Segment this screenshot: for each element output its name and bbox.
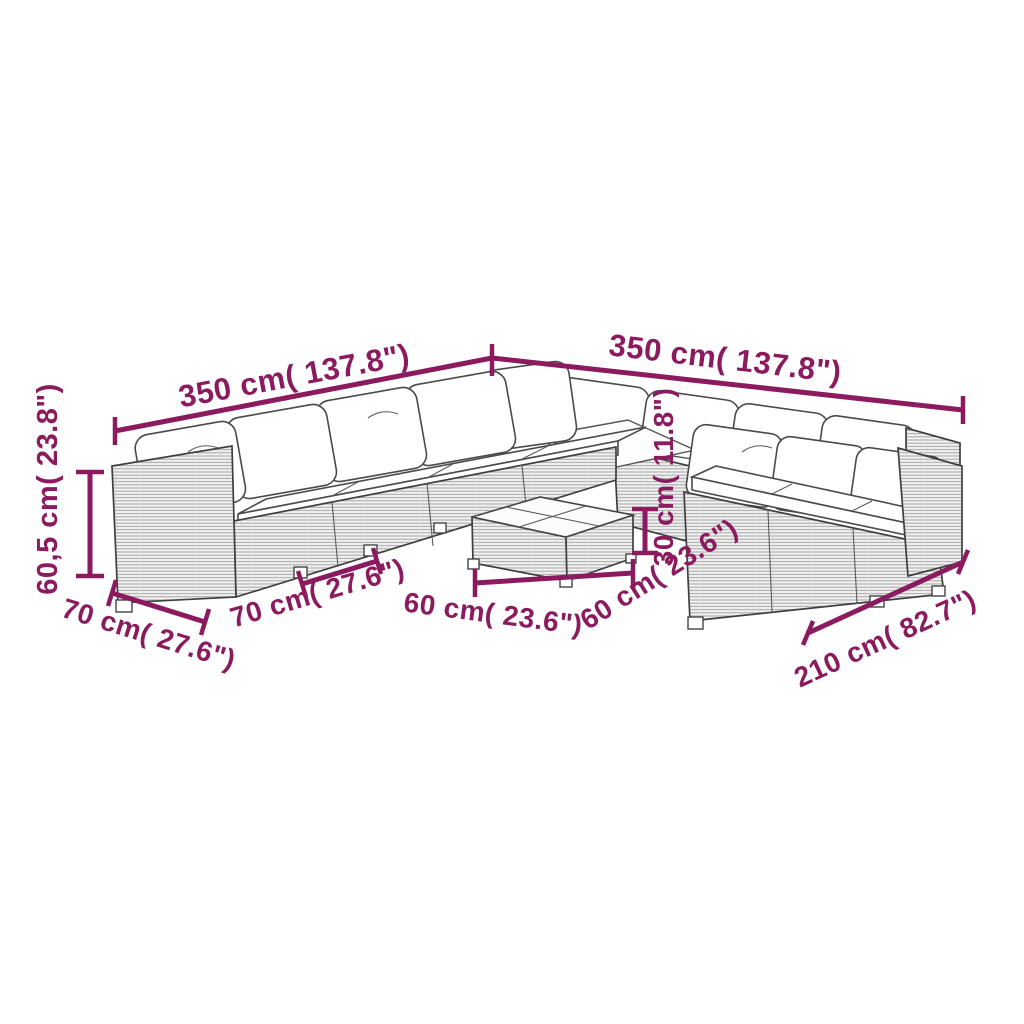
dimension-seat-height: 60,5 cm( 23.8") — [32, 383, 104, 594]
sofa-foot — [434, 523, 446, 533]
sofa-foot — [688, 617, 703, 629]
dim-label-table-height: 30 cm( 11.8") — [648, 388, 679, 567]
right-arm-panel — [898, 448, 962, 576]
diagram-canvas: 350 cm( 137.8") 350 cm( 137.8") 60,5 cm(… — [0, 0, 1024, 1024]
table-foot — [468, 559, 479, 569]
product-dimension-diagram: 350 cm( 137.8") 350 cm( 137.8") 60,5 cm(… — [0, 0, 1024, 1024]
dim-label-back-right-width: 350 cm( 137.8") — [607, 327, 844, 389]
dim-label-table-width: 60 cm( 23.6") — [402, 586, 585, 640]
dim-label-seat-height: 60,5 cm( 23.8") — [32, 383, 64, 594]
left-arm-panel — [112, 446, 236, 603]
